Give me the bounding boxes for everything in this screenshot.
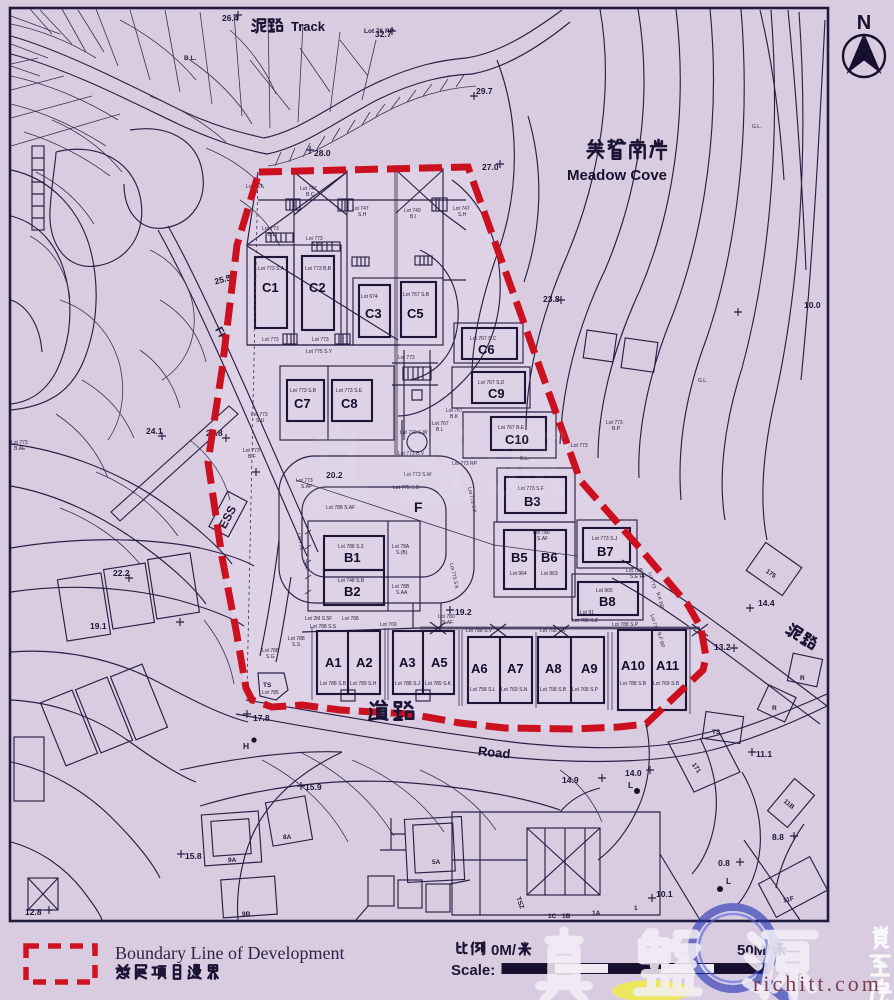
svg-text:Lot 773 B.B: Lot 773 B.B — [305, 266, 332, 272]
svg-text:Lot 773 S.A: Lot 773 S.A — [258, 266, 285, 272]
svg-text:Lot 788 S.B: Lot 788 S.B — [320, 681, 347, 687]
svg-text:Lot 788: Lot 788 — [342, 616, 359, 622]
svg-text:C7: C7 — [294, 396, 311, 411]
svg-text:C3: C3 — [365, 306, 382, 321]
svg-text:Lot 758 S.V: Lot 758 S.V — [540, 628, 567, 634]
svg-text:B.L.: B.L. — [184, 55, 196, 62]
svg-text:Lot 773 S.B: Lot 773 S.B — [290, 388, 317, 394]
svg-text:Lot 2M S.5F: Lot 2M S.5F — [305, 616, 332, 622]
svg-text:richitt.com: richitt.com — [753, 971, 882, 996]
svg-text:S.G: S.G — [266, 654, 275, 660]
svg-text:C2: C2 — [309, 280, 326, 295]
svg-text:Lot 785: Lot 785 — [262, 690, 279, 696]
svg-text:C8: C8 — [341, 396, 358, 411]
svg-text:15.8: 15.8 — [185, 851, 202, 861]
svg-text:10.1: 10.1 — [656, 889, 673, 899]
svg-text:Lot 768 S.P: Lot 768 S.P — [572, 687, 599, 693]
svg-text:28.0: 28.0 — [314, 148, 331, 158]
svg-text:H: H — [243, 741, 249, 751]
svg-text:1C: 1C — [548, 913, 557, 920]
svg-text:B5: B5 — [511, 550, 528, 565]
svg-text:17.8: 17.8 — [253, 713, 270, 723]
svg-text:A9: A9 — [581, 661, 598, 676]
svg-text:A6: A6 — [471, 661, 488, 676]
svg-text:Lot 758 S.L: Lot 758 S.L — [470, 687, 496, 693]
svg-text:Lot 788 S.V: Lot 788 S.V — [466, 628, 493, 634]
svg-text:B.P: B.P — [612, 426, 621, 432]
svg-text:11.1: 11.1 — [756, 749, 772, 759]
svg-text:12.8: 12.8 — [25, 907, 42, 917]
svg-text:C9: C9 — [488, 386, 505, 401]
svg-text:F: F — [414, 499, 423, 515]
svg-text:Lot 964: Lot 964 — [510, 571, 527, 577]
svg-text:Lot 769: Lot 769 — [380, 622, 397, 628]
svg-text:G.L.: G.L. — [752, 124, 761, 130]
svg-text:1: 1 — [634, 905, 638, 912]
svg-text:A10: A10 — [621, 658, 645, 673]
svg-text:R: R — [772, 705, 777, 712]
svg-text:Meadow Cove: Meadow Cove — [567, 167, 667, 184]
svg-text:S.S: S.S — [292, 642, 301, 648]
svg-text:S.AF: S.AF — [537, 536, 548, 542]
svg-text:Lot 963: Lot 963 — [541, 571, 558, 577]
svg-text:Lot 775 S.Y: Lot 775 S.Y — [306, 349, 333, 355]
svg-text:Lot 674: Lot 674 — [361, 294, 378, 300]
svg-text:Lot 769 S.B: Lot 769 S.B — [653, 681, 680, 687]
svg-text:B2: B2 — [344, 584, 361, 599]
svg-text:29.7: 29.7 — [476, 86, 493, 96]
svg-text:L: L — [628, 780, 633, 790]
svg-text:S.U: S.U — [256, 418, 265, 424]
svg-text:S.(B): S.(B) — [396, 550, 408, 556]
svg-text:9B: 9B — [242, 911, 251, 918]
svg-text:TS: TS — [263, 682, 272, 689]
svg-text:S.E RP: S.E RP — [630, 574, 647, 580]
svg-text:Lot 773 S.J: Lot 773 S.J — [592, 536, 618, 542]
svg-text:B6: B6 — [541, 550, 558, 565]
svg-text:B8: B8 — [599, 594, 616, 609]
svg-text:Lot 788 S.Z: Lot 788 S.Z — [572, 618, 598, 624]
svg-text:15.9: 15.9 — [305, 782, 322, 792]
svg-text:Lot 773: Lot 773 — [571, 443, 588, 449]
svg-text:Lot 767 S.B: Lot 767 S.B — [403, 292, 430, 298]
svg-text:A11: A11 — [656, 658, 679, 673]
svg-text:9A: 9A — [228, 857, 237, 864]
svg-text:Lot 773: Lot 773 — [262, 337, 279, 343]
svg-text:S.H: S.H — [458, 212, 467, 218]
svg-text:14.9: 14.9 — [562, 775, 579, 785]
svg-text:23.8: 23.8 — [543, 294, 560, 304]
svg-text:A5: A5 — [431, 655, 448, 670]
svg-text:G.L.: G.L. — [698, 378, 707, 384]
svg-text:Lot 789 S.K: Lot 789 S.K — [425, 681, 452, 687]
svg-text:Lot 769 S.N: Lot 769 S.N — [501, 687, 528, 693]
svg-text:A2: A2 — [356, 655, 373, 670]
svg-text:C1: C1 — [262, 280, 279, 295]
svg-text:N: N — [857, 12, 871, 34]
svg-text:0M/: 0M/ — [491, 942, 517, 959]
svg-text:8A: 8A — [283, 834, 292, 841]
svg-text:19.1: 19.1 — [90, 621, 107, 631]
svg-text:Boundary Line of Development: Boundary Line of Development — [115, 943, 344, 963]
svg-text:Lot 788 S.AF: Lot 788 S.AF — [326, 505, 355, 511]
svg-text:B7: B7 — [597, 544, 614, 559]
svg-text:B.I: B.I — [410, 214, 416, 220]
svg-text:22.2: 22.2 — [113, 568, 130, 578]
svg-text:Track: Track — [291, 19, 326, 34]
svg-text:B.C: B.C — [306, 192, 315, 198]
svg-text:A3: A3 — [399, 655, 416, 670]
svg-text:Lot 773: Lot 773 — [398, 355, 415, 361]
svg-text:Lot 788 S.P: Lot 788 S.P — [612, 622, 639, 628]
svg-text:1A: 1A — [592, 910, 601, 917]
svg-text:R: R — [800, 675, 805, 682]
svg-text:Lot 91: Lot 91 — [580, 610, 594, 616]
svg-text:1B: 1B — [562, 913, 571, 920]
svg-text:C6: C6 — [478, 342, 495, 357]
svg-text:S.AA: S.AA — [396, 590, 408, 596]
svg-text:Lot 76 RP: Lot 76 RP — [364, 28, 395, 35]
svg-text:Lot 788 S.J: Lot 788 S.J — [395, 681, 421, 687]
svg-text:A7: A7 — [507, 661, 524, 676]
svg-text:Lot 773: Lot 773 — [312, 337, 329, 343]
svg-text:8.8: 8.8 — [772, 832, 784, 842]
svg-text:Lot 773 S.E: Lot 773 S.E — [336, 388, 363, 394]
svg-text:19.2: 19.2 — [455, 607, 472, 617]
svg-text:0.8: 0.8 — [718, 858, 730, 868]
svg-text:A8: A8 — [545, 661, 562, 676]
svg-text:B.K: B.K — [450, 414, 459, 420]
svg-text:5A: 5A — [432, 859, 441, 866]
svg-text:B1: B1 — [344, 550, 361, 565]
svg-text:Scale:: Scale: — [451, 962, 495, 979]
svg-text:14.4: 14.4 — [758, 598, 775, 608]
svg-text:Lot 789 S.H: Lot 789 S.H — [350, 681, 377, 687]
svg-text:B.AE: B.AE — [14, 446, 26, 452]
svg-text:C5: C5 — [407, 306, 424, 321]
svg-text:Lot 758 S.B: Lot 758 S.B — [540, 687, 567, 693]
svg-text:Lot 788 S.B: Lot 788 S.B — [620, 681, 647, 687]
svg-text:10.0: 10.0 — [804, 300, 821, 310]
svg-text:Lot 767 B.E: Lot 767 B.E — [498, 425, 525, 431]
svg-text:L: L — [726, 876, 731, 886]
svg-text:14.0: 14.0 — [625, 768, 642, 778]
svg-text:A1: A1 — [325, 655, 342, 670]
svg-text:13.2: 13.2 — [714, 642, 731, 652]
svg-text:S.AF: S.AF — [442, 620, 453, 626]
svg-text:Lot 788 S.S: Lot 788 S.S — [310, 624, 337, 630]
svg-text:S.H: S.H — [358, 212, 367, 218]
svg-text:24.1: 24.1 — [146, 426, 163, 436]
